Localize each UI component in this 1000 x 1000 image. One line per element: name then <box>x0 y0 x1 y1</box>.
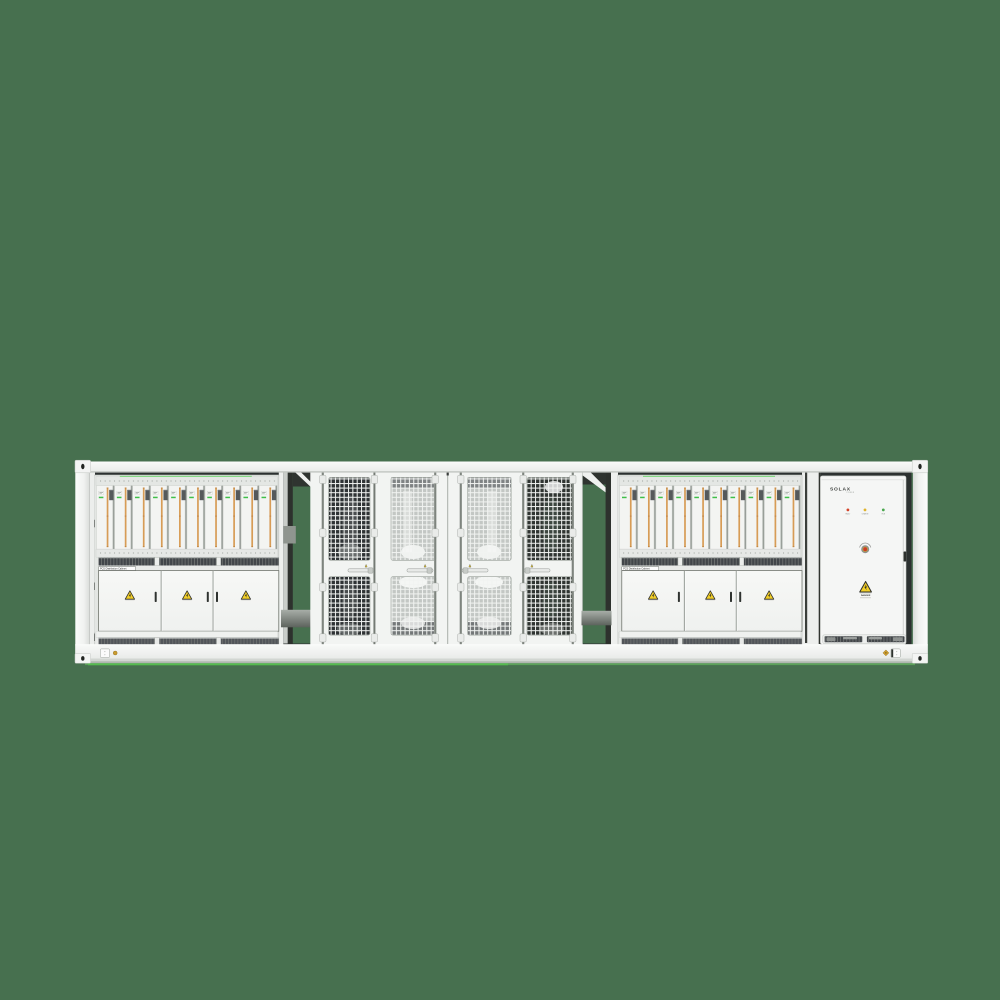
svg-text:POWER: POWER <box>847 492 855 494</box>
svg-text:DANGER: DANGER <box>861 594 871 597</box>
